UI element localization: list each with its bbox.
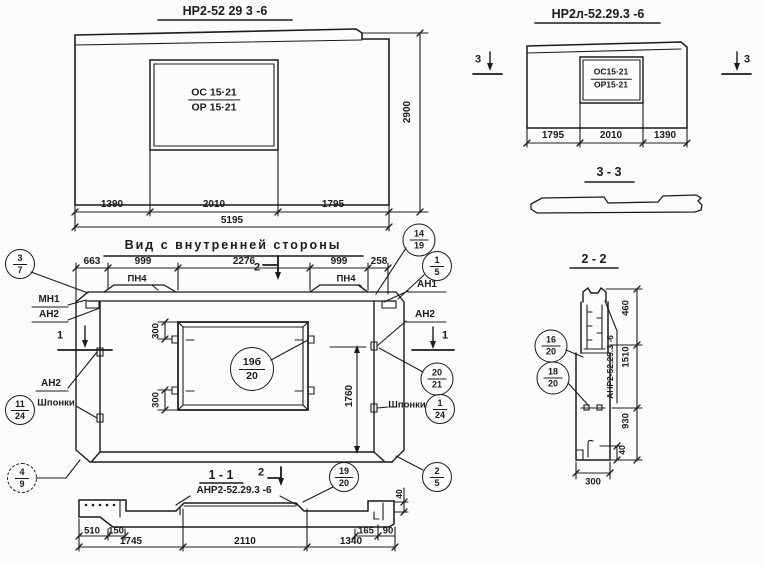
dim-300-2: 300 — [585, 477, 601, 487]
callout-bottom: 5 — [434, 478, 439, 488]
dim-5195: 5195 — [221, 216, 243, 226]
callout-bottom: 24 — [435, 410, 445, 420]
dim-2900: 2900 — [403, 101, 413, 123]
dim-1795: 1795 — [322, 200, 344, 210]
left-opening-mark: ОС15·21 ОР15·21 — [591, 68, 632, 91]
dim-300-bottom: 300 — [151, 392, 161, 408]
callout-18-20: 18 20 — [537, 362, 570, 395]
callout-3-7: 3 7 — [5, 249, 35, 279]
dim-460: 460 — [621, 300, 631, 316]
dim-90: 90 — [383, 526, 394, 536]
dim-2010: 2010 — [600, 131, 622, 141]
callout-bottom: 9 — [19, 479, 24, 489]
embed-pn4-right: ПН4 — [337, 274, 356, 284]
dim-1745: 1745 — [120, 537, 142, 547]
dim-2276: 2276 — [233, 257, 255, 267]
callout-bottom: 20 — [546, 347, 556, 357]
section-1-mark-left: 1 — [57, 331, 63, 342]
section-1-1-label: АНР2-52.29.3 -6 — [196, 486, 271, 496]
callout-top: 4 — [15, 468, 28, 479]
keys-label-right: Шпонки — [388, 400, 425, 410]
callout-bottom: 20 — [548, 379, 558, 389]
inner-view-title: Вид с внутренней стороны — [125, 239, 342, 252]
dim-930: 930 — [621, 413, 631, 429]
callout-top: 16 — [542, 336, 560, 347]
callout-4-9: 4 9 — [7, 463, 37, 493]
callout-top: 2 — [430, 467, 443, 478]
callout-11-24: 11 24 — [5, 395, 35, 425]
dim-999: 999 — [135, 257, 152, 267]
callout-top: 11 — [11, 400, 29, 411]
keys-label-left: Шпонки — [37, 398, 74, 408]
callout-bottom: 5 — [434, 267, 439, 277]
callout-bottom: 19 — [414, 241, 424, 251]
callout-bottom: 21 — [432, 380, 442, 390]
callout-1-24: 1 24 — [425, 394, 455, 424]
callout-top: 1 — [433, 399, 446, 410]
callout-bottom: 20 — [339, 478, 349, 488]
callout-top: 14 — [410, 230, 428, 241]
opening-mark-bottom: ОР15·21 — [591, 80, 632, 91]
dim-1390: 1390 — [101, 200, 123, 210]
callout-19-20: 19 20 — [329, 462, 359, 492]
dim-1390: 1390 — [654, 131, 676, 141]
callout-20-21: 20 21 — [421, 363, 454, 396]
front-view-title: НР2-52 29 3 -6 — [183, 5, 268, 18]
dim-1340: 1340 — [340, 537, 362, 547]
callout-1-5: 1 5 — [422, 251, 452, 281]
section-3-mark-right: 3 — [744, 55, 750, 66]
callout-2-5: 2 5 — [422, 462, 452, 492]
callout-top: 20 — [428, 369, 446, 380]
embed-an1: АН1 — [417, 280, 437, 290]
opening-mark-bottom: ОР 15·21 — [188, 101, 240, 114]
front-opening-mark: ОС 15·21 ОР 15·21 — [188, 86, 240, 113]
callout-19b-20: 19б 20 — [230, 347, 274, 391]
dim-165: 165 — [358, 526, 374, 536]
callout-top: 19 — [335, 467, 353, 478]
dim-258: 258 — [371, 257, 388, 267]
dim-40-2: 40 — [618, 445, 627, 454]
callout-top: 18 — [544, 368, 562, 379]
drawing-sheet: НР2-52 29 3 -6 ОС 15·21 ОР 15·21 1390 20… — [0, 0, 763, 564]
dim-150: 150 — [108, 526, 124, 536]
dim-1795: 1795 — [542, 131, 564, 141]
section-2-mark-bottom: 2 — [258, 468, 264, 479]
dim-1510: 1510 — [621, 346, 631, 367]
opening-mark-top: ОС 15·21 — [188, 86, 240, 100]
embed-an2-right: АН2 — [415, 310, 435, 320]
dim-663: 663 — [84, 257, 101, 267]
section-1-mark-right: 1 — [442, 331, 448, 342]
callout-bottom: 20 — [246, 370, 258, 382]
embed-pn4-left: ПН4 — [128, 274, 147, 284]
dim-2010: 2010 — [203, 200, 225, 210]
drawing-linework — [0, 0, 763, 564]
left-view-title: НР2л-52.29.3 -6 — [552, 8, 645, 21]
section-1-1-title: 1 - 1 — [208, 469, 233, 482]
dim-999b: 999 — [331, 257, 348, 267]
section-3-mark-left: 3 — [475, 55, 481, 66]
embed-an2-left-top: АН2 — [39, 310, 59, 320]
section-2-2-label: АНР2-52.29.3 -6 — [606, 335, 615, 399]
embed-an2-left: АН2 — [41, 379, 61, 389]
callout-top: 1 — [430, 256, 443, 267]
section-3-3-title: 3 - 3 — [596, 166, 621, 179]
dim-40: 40 — [395, 489, 404, 498]
embed-mn1: МН1 — [38, 295, 59, 305]
callout-bottom: 7 — [17, 265, 22, 275]
dim-510: 510 — [84, 526, 100, 536]
callout-bottom: 24 — [15, 411, 25, 421]
section-2-mark-top: 2 — [254, 263, 260, 274]
callout-top: 3 — [13, 254, 26, 265]
opening-mark-top: ОС15·21 — [591, 68, 632, 80]
dim-2110: 2110 — [234, 537, 256, 547]
callout-16-20: 16 20 — [535, 330, 568, 363]
dim-300-top: 300 — [151, 323, 161, 339]
callout-top: 19б — [239, 357, 265, 370]
dim-1760: 1760 — [345, 385, 355, 407]
section-2-2-title: 2 - 2 — [581, 253, 606, 266]
